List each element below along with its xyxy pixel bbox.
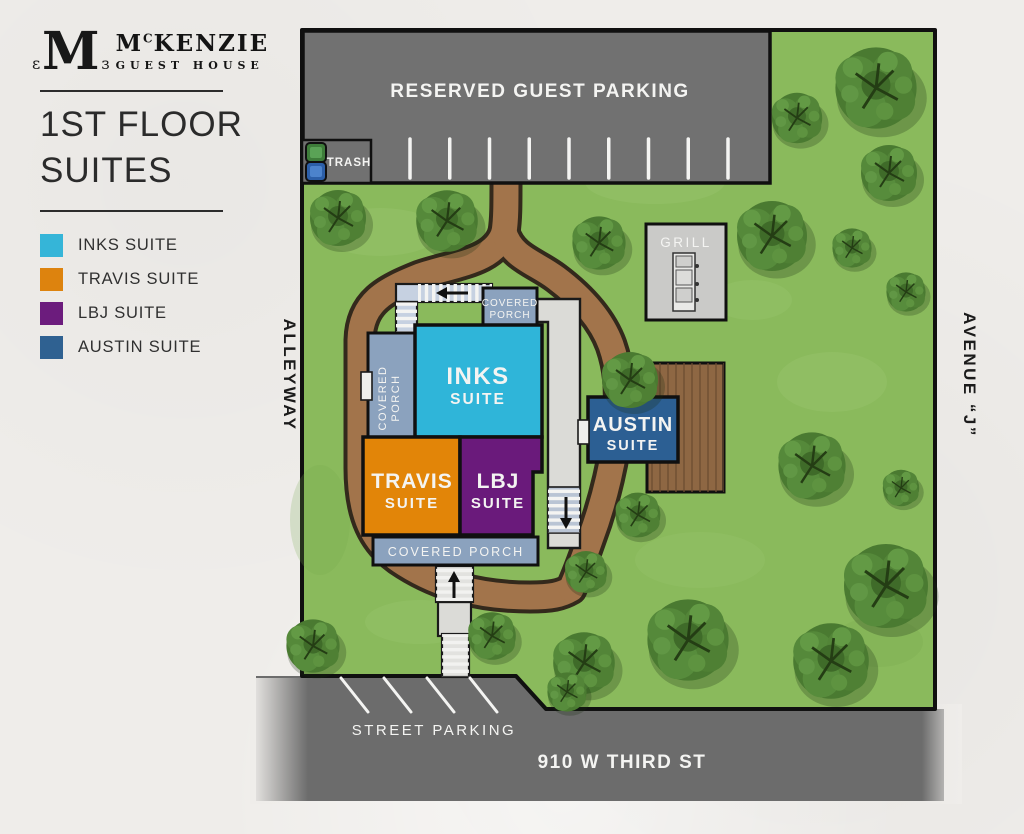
svg-text:COVERED PORCH: COVERED PORCH	[388, 545, 524, 559]
suite-legend: INKS SUITETRAVIS SUITELBJ SUITEAUSTIN SU…	[40, 234, 276, 359]
top-covered-porch: COVERED PORCH	[482, 288, 538, 325]
sidebar: ɛ M ɜ MCKENZIE GUEST HOUSE 1ST FLOOR SUI…	[36, 26, 276, 359]
legend-item-lbj-suite: LBJ SUITE	[40, 302, 276, 325]
street-name-label: 910 W THIRD ST	[538, 752, 707, 773]
legend-item-travis-suite: TRAVIS SUITE	[40, 268, 276, 291]
divider-bottom	[40, 210, 223, 212]
svg-text:AUSTIN: AUSTIN	[593, 414, 673, 436]
page-title: 1ST FLOOR SUITES	[40, 102, 276, 194]
svg-text:TRAVIS: TRAVIS	[371, 470, 452, 493]
svg-text:SUITE: SUITE	[471, 495, 525, 512]
austin-door-step	[578, 420, 589, 444]
page: { "sidebar": { "logo": { "monogram": "M"…	[0, 0, 1024, 834]
grill-icon	[673, 253, 699, 311]
svg-text:COVERED: COVERED	[377, 366, 389, 431]
trash-label: TRASH	[327, 157, 372, 169]
brand-subtitle: GUEST HOUSE	[116, 59, 270, 72]
mckenzie-monogram-icon: ɛ M ɜ	[36, 26, 106, 78]
south-covered-porch: COVERED PORCH	[373, 537, 538, 565]
svg-text:SUITE: SUITE	[385, 495, 439, 512]
brand-name: MCKENZIE	[116, 32, 270, 55]
alleyway-label: ALLEYWAY	[280, 319, 299, 432]
grill-area: GRILL	[646, 224, 726, 320]
grill-label: GRILL	[660, 235, 712, 250]
travis-suite: TRAVIS SUITE	[363, 437, 460, 535]
trash-enclosure: TRASH	[302, 140, 371, 183]
svg-text:INKS: INKS	[446, 363, 509, 390]
lbj-suite-swatch-icon	[40, 302, 63, 325]
travis-suite-label: TRAVIS SUITE	[78, 270, 199, 289]
flourish-left-icon: ɛ	[32, 56, 40, 72]
legend-item-austin-suite: AUSTIN SUITE	[40, 336, 276, 359]
inks-suite: INKS SUITE	[415, 325, 542, 437]
travis-suite-swatch-icon	[40, 268, 63, 291]
austin-suite-swatch-icon	[40, 336, 63, 359]
reserved-parking-label: RESERVED GUEST PARKING	[390, 81, 689, 102]
street-parking-label: STREET PARKING	[352, 722, 516, 739]
svg-text:LBJ: LBJ	[477, 470, 520, 493]
svg-text:SUITE: SUITE	[607, 438, 660, 454]
flourish-right-icon: ɜ	[101, 56, 109, 72]
legend-item-inks-suite: INKS SUITE	[40, 234, 276, 257]
guest-parking-lot: RESERVED GUEST PARKING TRASH	[302, 31, 770, 183]
lbj-suite-label: LBJ SUITE	[78, 304, 167, 323]
austin-suite-label: AUSTIN SUITE	[78, 338, 201, 357]
svg-text:PORCH: PORCH	[489, 310, 530, 321]
front-walkway	[436, 566, 473, 677]
avenue-j-label: AVENUE “J”	[960, 312, 979, 438]
lbj-suite: LBJ SUITE	[460, 437, 542, 535]
inks-suite-swatch-icon	[40, 234, 63, 257]
svg-text:PORCH: PORCH	[390, 374, 402, 421]
west-porch-step	[361, 372, 372, 400]
brand-logo: ɛ M ɜ MCKENZIE GUEST HOUSE	[36, 26, 276, 78]
svg-text:COVERED: COVERED	[482, 298, 538, 309]
svg-text:SUITE: SUITE	[450, 391, 506, 408]
inks-suite-label: INKS SUITE	[78, 236, 178, 255]
divider-top	[40, 90, 223, 92]
